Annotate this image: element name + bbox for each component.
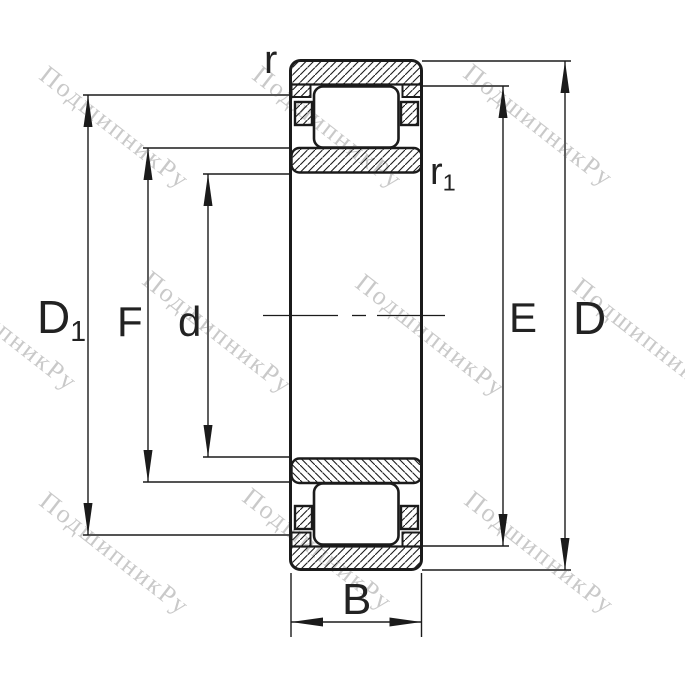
dim-label-d: d — [178, 301, 201, 343]
top-section — [291, 62, 422, 173]
cage-bar-bottom-right — [401, 506, 418, 529]
outer-ring-flange-top-right — [403, 85, 422, 98]
inner-ring-top — [292, 148, 422, 173]
outer-ring-flange-top-left — [292, 85, 311, 98]
cage-bar-top-left — [295, 102, 312, 125]
dim-label-r1-base: r — [430, 151, 443, 193]
dim-label-D1: D1 — [37, 294, 86, 347]
cage-bar-bottom-left — [295, 506, 312, 529]
arrow-d-down — [204, 425, 213, 457]
arrow-E-down — [499, 514, 508, 546]
arrow-D-down — [561, 538, 570, 570]
dim-label-r1: r1 — [430, 153, 456, 195]
arrow-D1-down — [84, 503, 93, 535]
arrow-E-up — [499, 86, 508, 118]
dim-label-D1-sub: 1 — [70, 316, 86, 348]
outer-ring-flange-bottom-right — [403, 533, 422, 547]
dim-label-F: F — [117, 301, 143, 343]
roller-top — [314, 87, 399, 148]
arrow-F-up — [144, 148, 153, 180]
outer-ring-bottom-hatch — [292, 547, 420, 568]
bearing-drawing: D1 F d E D B r r1 ПодшипникРу ПодшипникР… — [0, 0, 685, 689]
outer-ring-flange-bottom-left — [292, 533, 311, 547]
inner-ring-bottom — [292, 459, 422, 484]
dim-label-r: r — [264, 40, 277, 80]
arrow-B-left — [291, 618, 323, 627]
dim-label-B: B — [342, 578, 371, 622]
outer-ring-top-hatch — [292, 62, 420, 84]
dim-label-D1-base: D — [37, 291, 70, 343]
arrow-B-right — [390, 618, 422, 627]
arrow-F-down — [144, 450, 153, 482]
dim-label-r1-sub: 1 — [443, 170, 456, 196]
arrow-D-up — [561, 61, 570, 93]
dim-label-D: D — [573, 295, 606, 341]
bottom-section — [291, 459, 422, 569]
arrow-D1-up — [84, 95, 93, 127]
cage-bar-top-right — [401, 102, 418, 125]
roller-bottom — [314, 484, 399, 545]
dim-label-E: E — [509, 297, 537, 339]
arrow-d-up — [204, 174, 213, 206]
